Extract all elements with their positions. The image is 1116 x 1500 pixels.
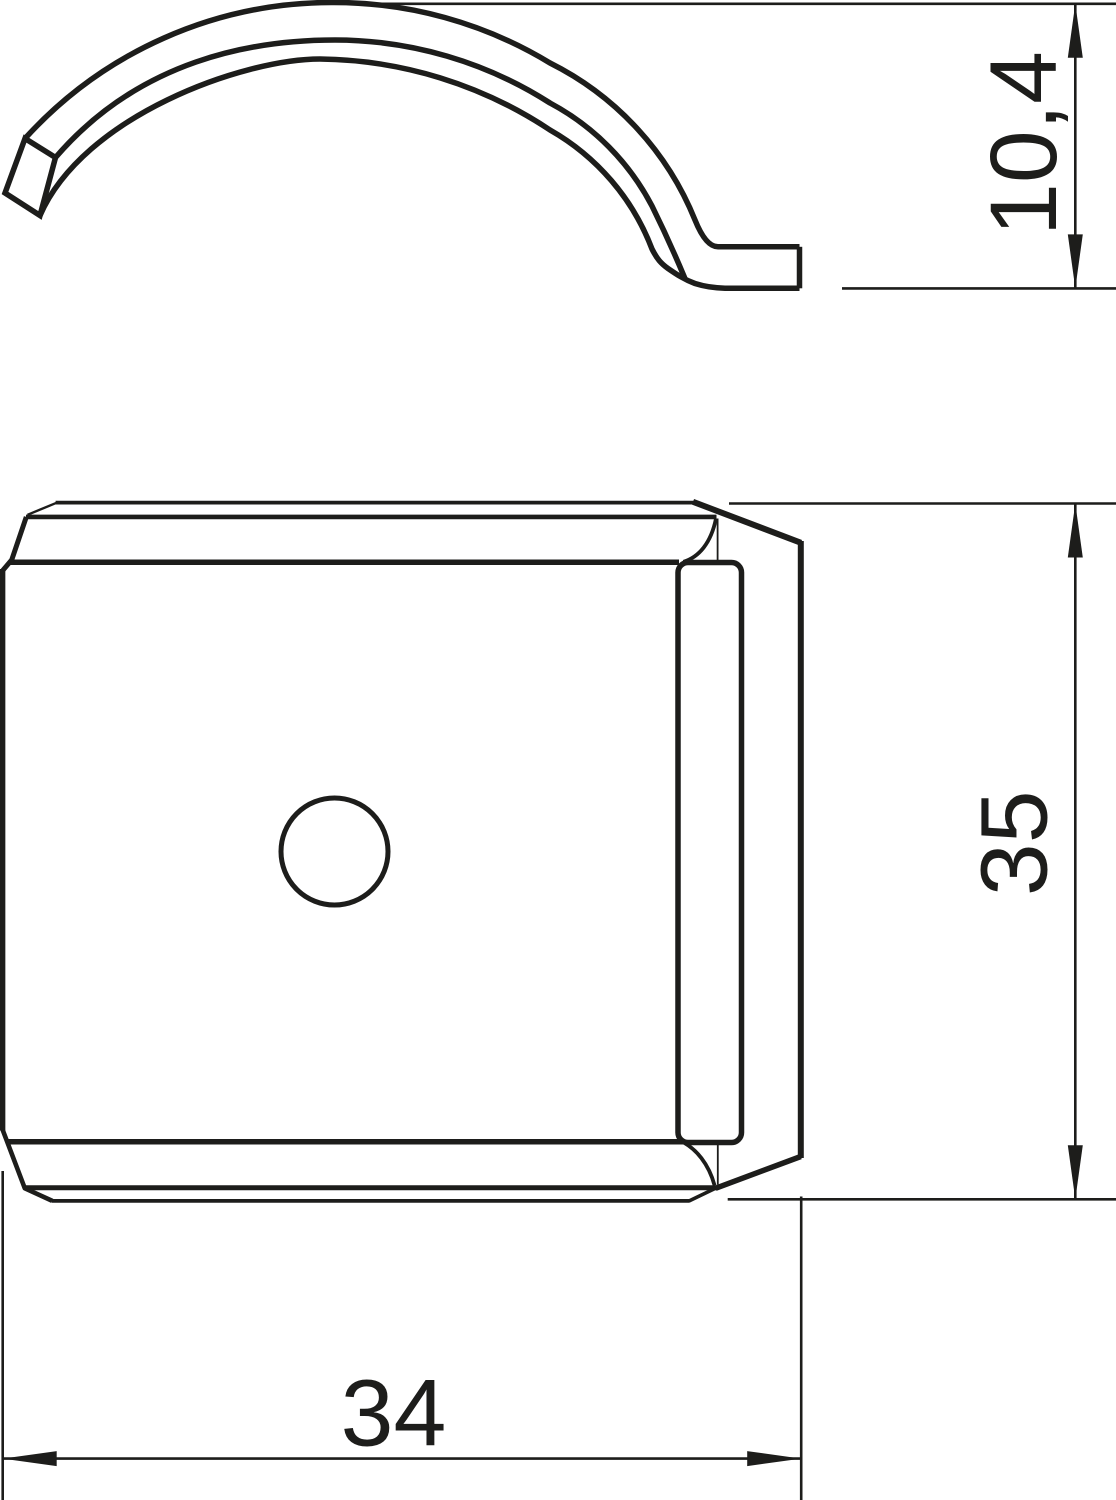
svg-text:35: 35: [961, 790, 1067, 896]
svg-text:10,4: 10,4: [971, 51, 1077, 236]
svg-text:34: 34: [341, 1361, 447, 1467]
